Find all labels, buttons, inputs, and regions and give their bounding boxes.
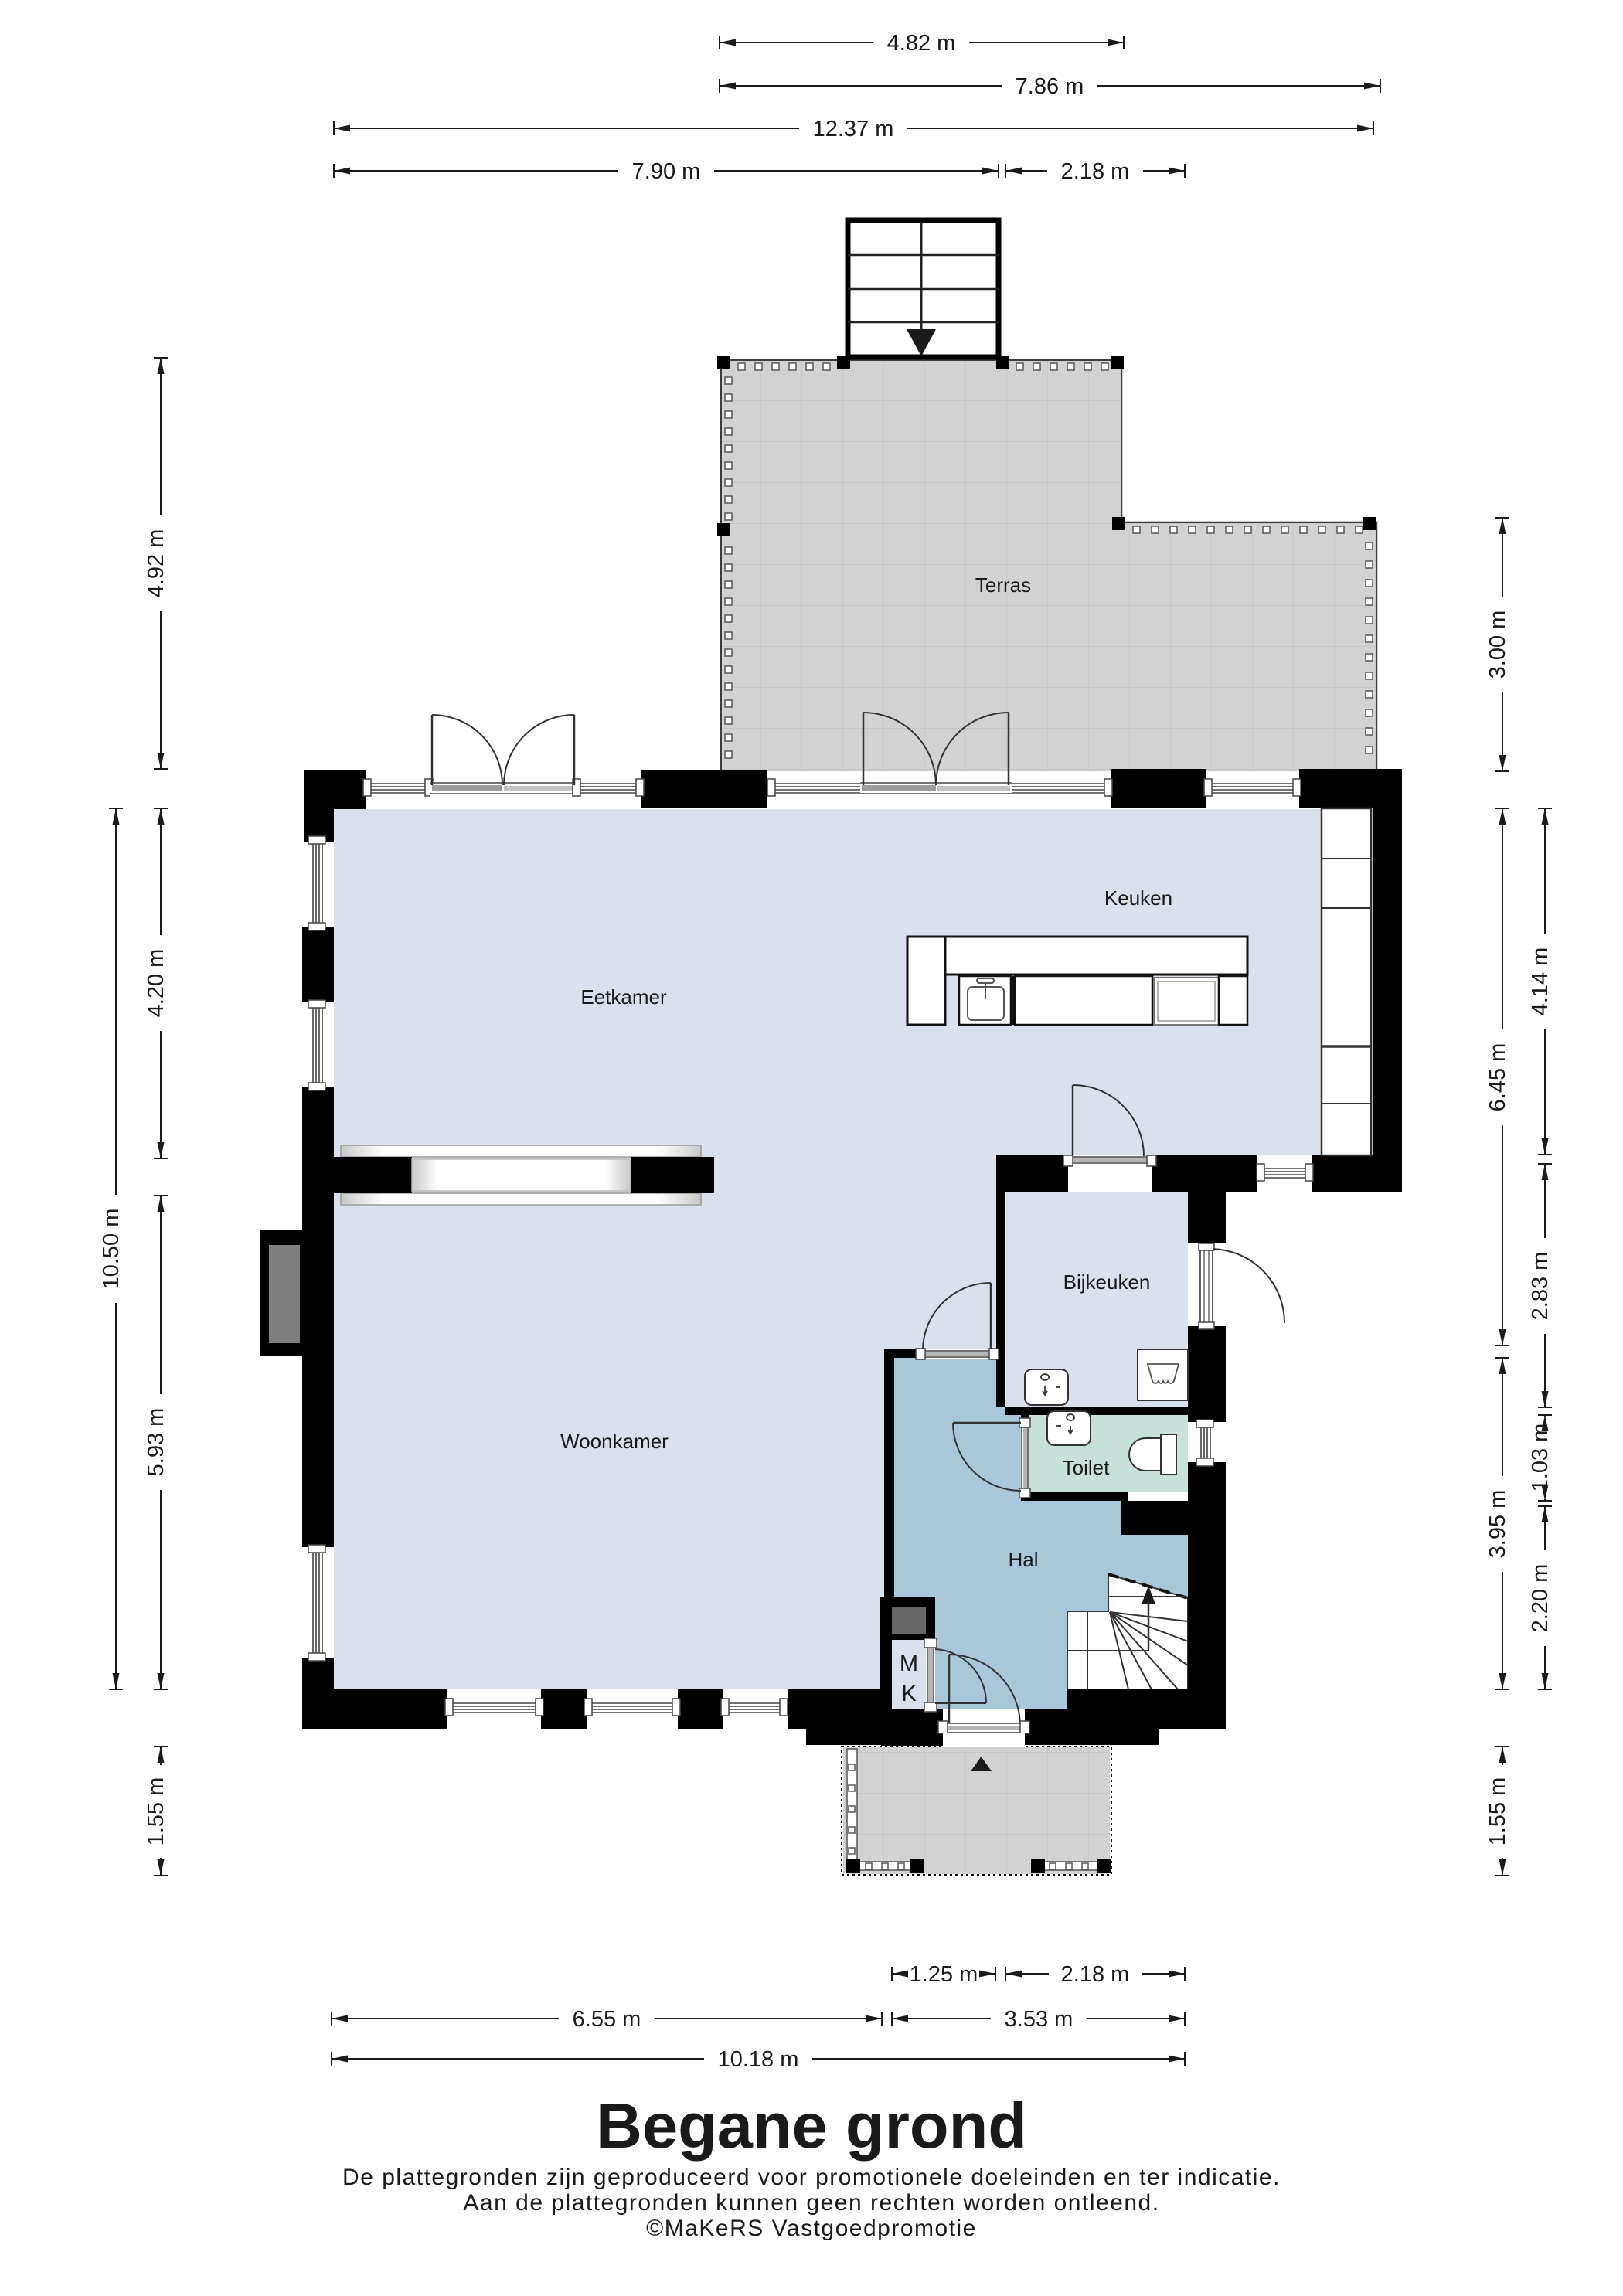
svg-text:3.95 m: 3.95 m <box>1485 1490 1510 1559</box>
svg-text:Toilet: Toilet <box>1063 1456 1110 1479</box>
svg-text:6.55 m: 6.55 m <box>573 2007 641 2032</box>
svg-text:De plattegronden zijn geproduc: De plattegronden zijn geproduceerd voor … <box>342 2165 1281 2190</box>
svg-text:Hal: Hal <box>1008 1548 1038 1571</box>
svg-text:5.93 m: 5.93 m <box>144 1408 168 1477</box>
svg-text:2.18 m: 2.18 m <box>1061 1962 1130 1987</box>
svg-text:4.14 m: 4.14 m <box>1528 947 1553 1016</box>
svg-text:12.37 m: 12.37 m <box>813 117 894 141</box>
svg-text:2.20 m: 2.20 m <box>1528 1564 1553 1633</box>
svg-text:Keuken: Keuken <box>1104 886 1172 910</box>
svg-text:1.25 m: 1.25 m <box>910 1962 978 1987</box>
svg-text:Woonkamer: Woonkamer <box>560 1430 669 1453</box>
svg-text:Aan de plattegronden kunnen ge: Aan de plattegronden kunnen geen rechten… <box>463 2190 1159 2216</box>
svg-text:10.50 m: 10.50 m <box>99 1209 124 1290</box>
svg-text:6.45 m: 6.45 m <box>1485 1043 1510 1112</box>
svg-text:K: K <box>901 1682 917 1706</box>
svg-text:©MaKeRS Vastgoedpromotie: ©MaKeRS Vastgoedpromotie <box>646 2216 977 2241</box>
svg-text:4.20 m: 4.20 m <box>144 949 168 1018</box>
svg-text:3.00 m: 3.00 m <box>1485 611 1510 679</box>
svg-text:Eetkamer: Eetkamer <box>580 985 667 1009</box>
svg-text:Terras: Terras <box>975 573 1031 597</box>
svg-text:1.55 m: 1.55 m <box>1485 1777 1510 1846</box>
svg-text:7.90 m: 7.90 m <box>632 159 701 184</box>
svg-text:4.92 m: 4.92 m <box>144 529 168 598</box>
svg-text:2.83 m: 2.83 m <box>1528 1252 1553 1321</box>
svg-text:1.55 m: 1.55 m <box>144 1777 168 1846</box>
svg-text:M: M <box>900 1651 918 1676</box>
svg-text:2.18 m: 2.18 m <box>1061 159 1130 184</box>
svg-text:10.18 m: 10.18 m <box>718 2047 799 2072</box>
svg-text:4.82 m: 4.82 m <box>887 31 956 56</box>
svg-text:3.53 m: 3.53 m <box>1005 2007 1073 2032</box>
svg-text:1.03 m: 1.03 m <box>1528 1424 1553 1492</box>
svg-text:Begane grond: Begane grond <box>596 2090 1027 2162</box>
svg-text:7.86 m: 7.86 m <box>1016 74 1084 99</box>
svg-text:Bijkeuken: Bijkeuken <box>1063 1270 1151 1294</box>
